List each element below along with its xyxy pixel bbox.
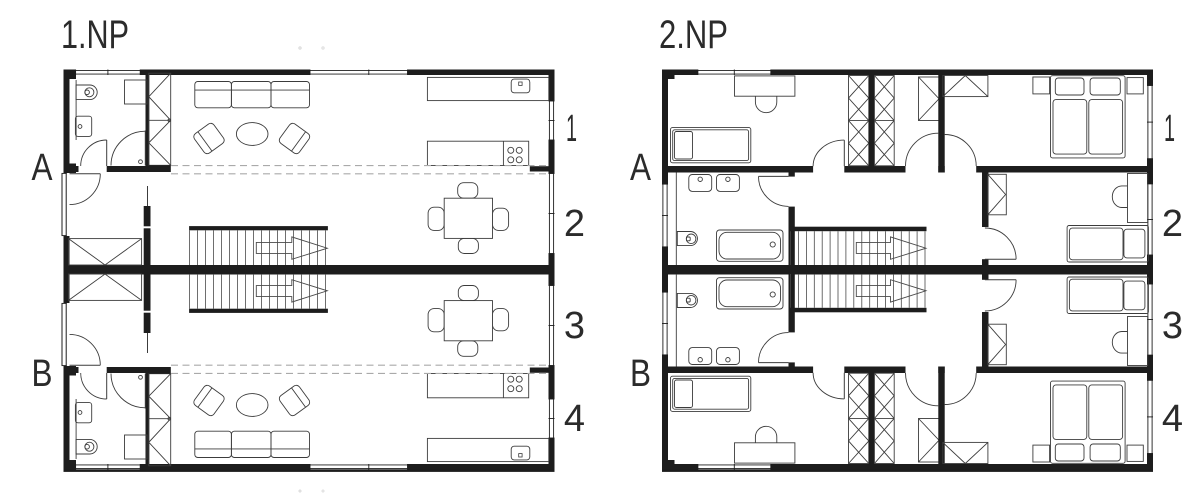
svg-text:1: 1 (1164, 108, 1175, 150)
svg-text:2: 2 (564, 203, 585, 245)
svg-text:A: A (630, 147, 652, 189)
svg-text:1.NP: 1.NP (61, 13, 129, 57)
svg-text:B: B (630, 353, 651, 395)
svg-text:3: 3 (564, 305, 585, 347)
svg-text:1: 1 (566, 108, 577, 150)
svg-text:B: B (32, 353, 53, 395)
svg-text:2.NP: 2.NP (659, 13, 728, 57)
svg-text:4: 4 (1162, 398, 1183, 440)
svg-text:A: A (32, 147, 54, 189)
svg-text:4: 4 (564, 398, 585, 440)
svg-text:2: 2 (1162, 203, 1183, 245)
svg-text:3: 3 (1162, 305, 1183, 347)
